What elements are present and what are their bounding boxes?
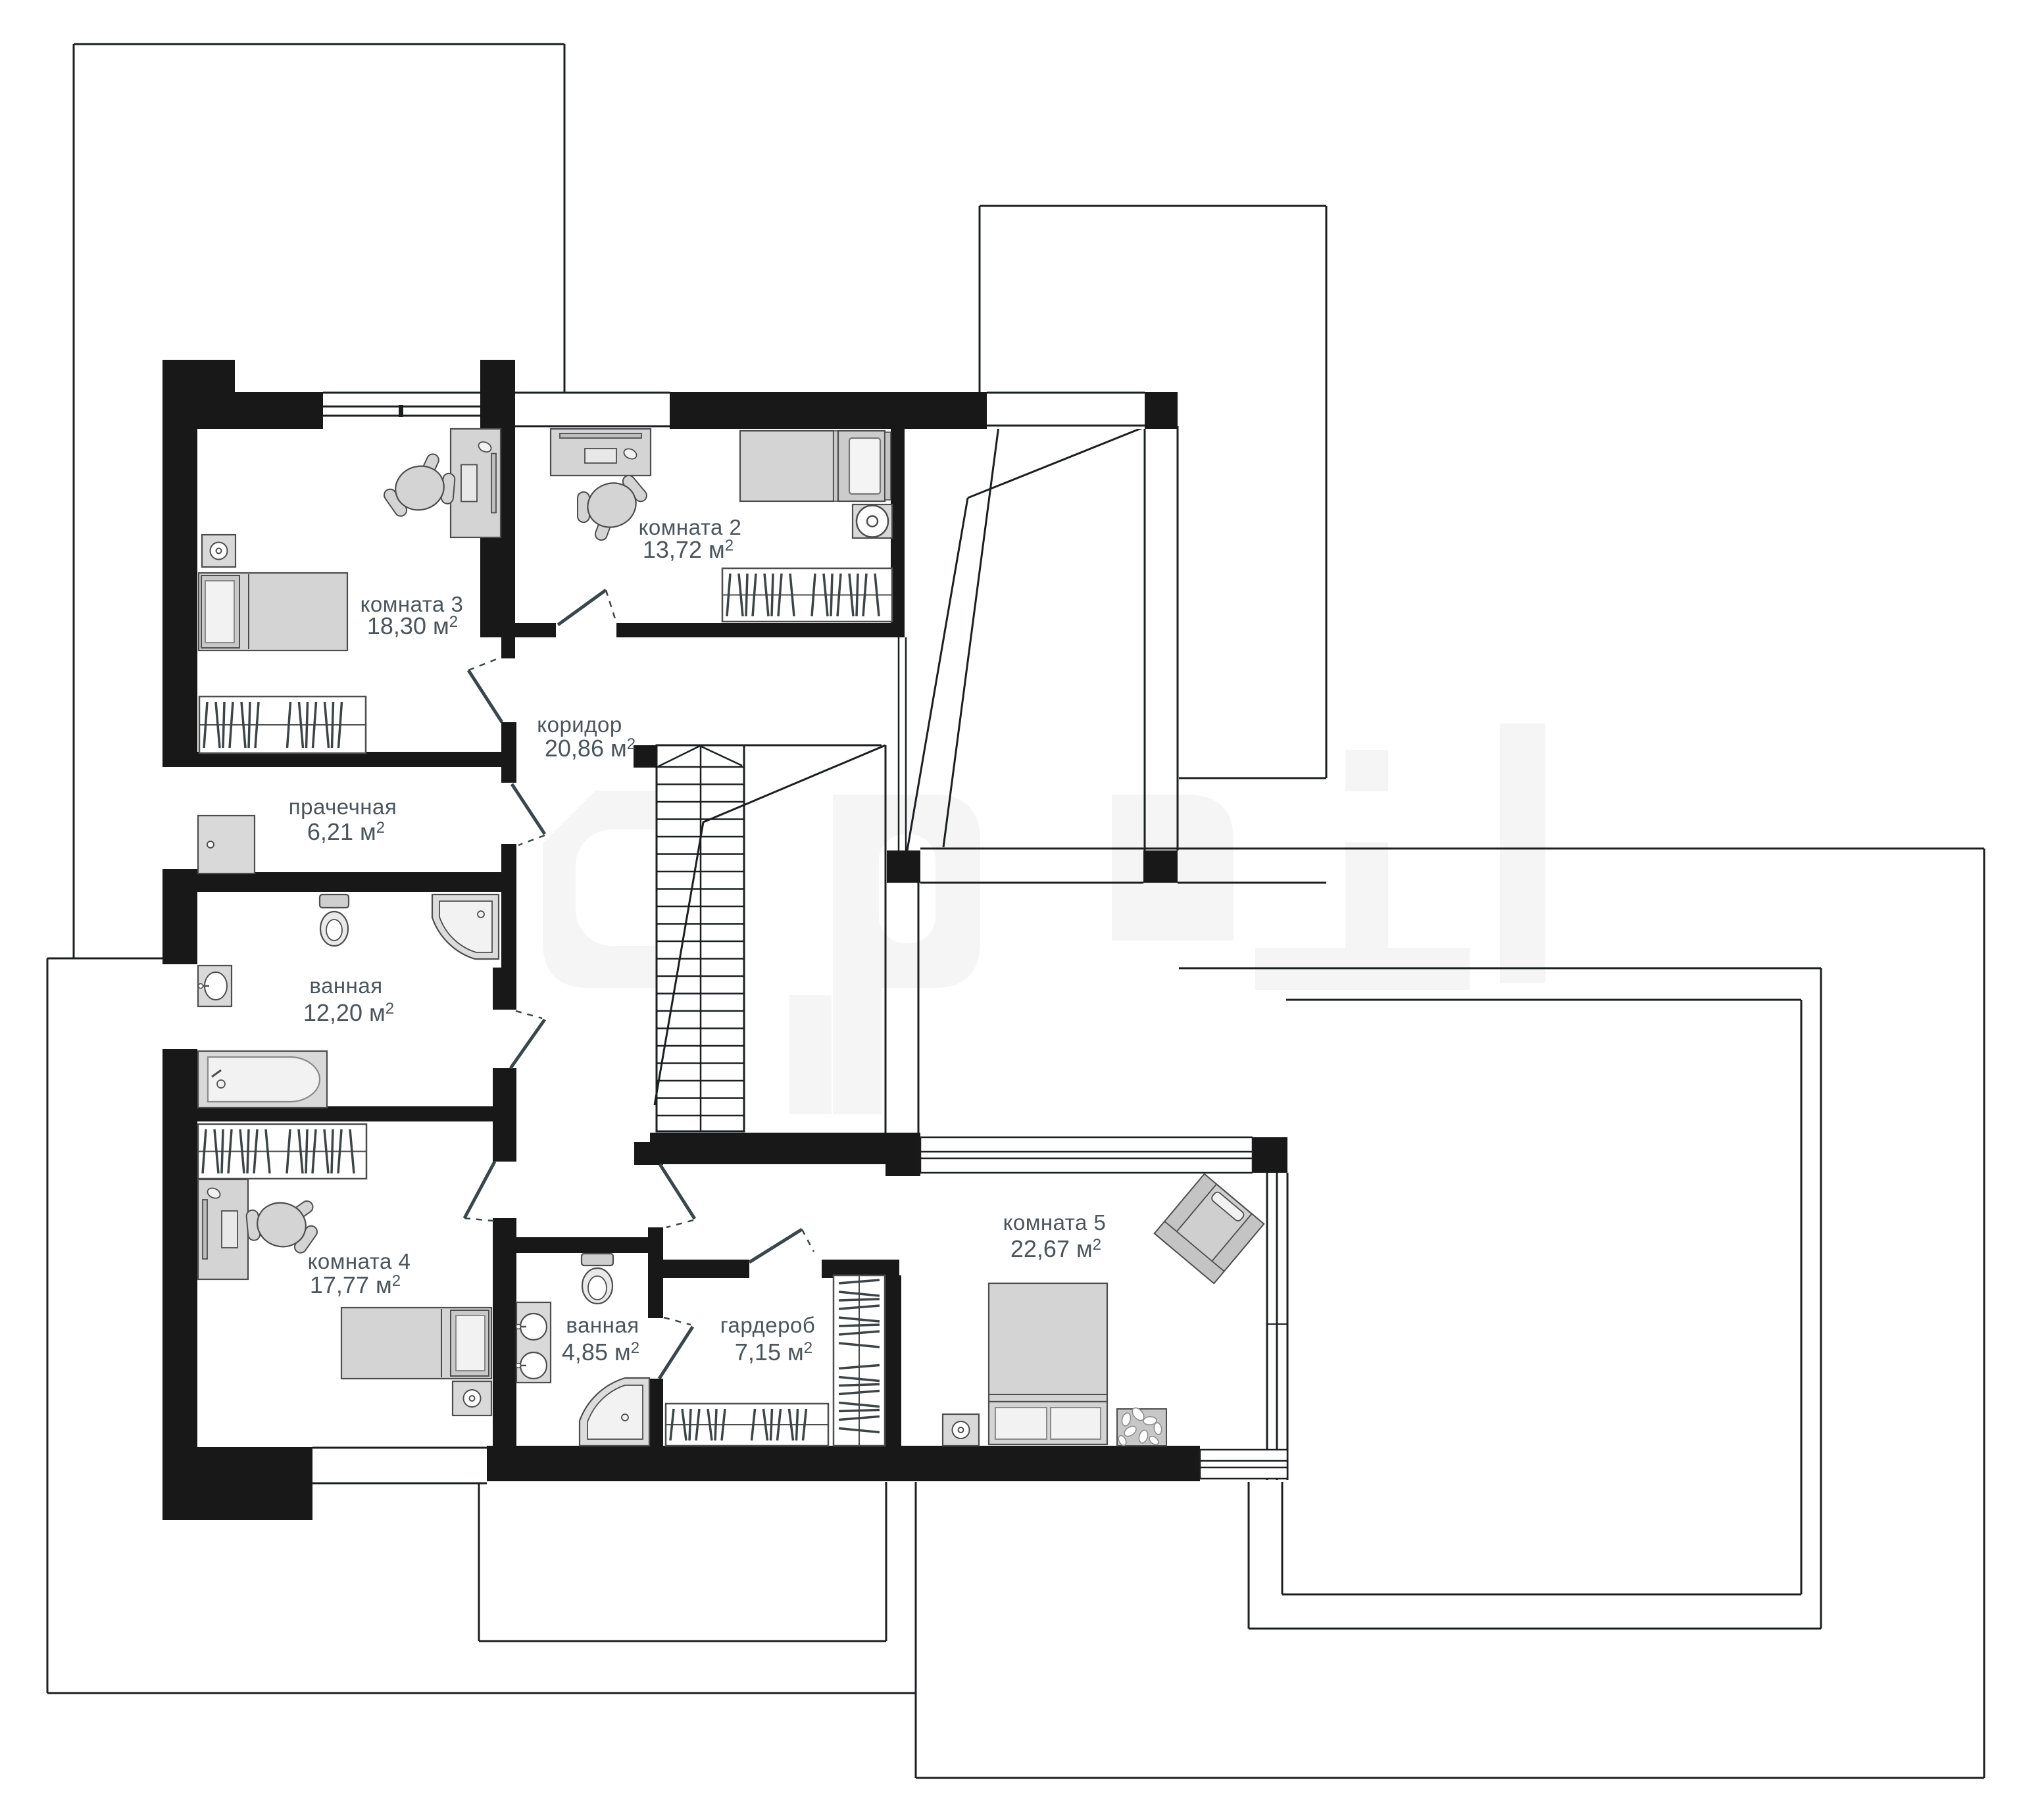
svg-text:20,86 м2: 20,86 м2 [545,735,636,762]
svg-text:22,67 м2: 22,67 м2 [1010,1235,1101,1262]
svg-text:13,72 м2: 13,72 м2 [643,536,734,563]
svg-text:17,77 м2: 17,77 м2 [310,1271,401,1298]
svg-text:18,30 м2: 18,30 м2 [367,612,458,639]
svg-text:4,85 м2: 4,85 м2 [562,1339,639,1365]
svg-text:комната 4: комната 4 [308,1249,411,1273]
svg-text:комната 5: комната 5 [1003,1210,1107,1235]
svg-text:гардероб: гардероб [720,1313,815,1337]
svg-text:ванная: ванная [309,973,382,998]
svg-text:6,21 м2: 6,21 м2 [307,818,385,845]
svg-text:коридор: коридор [537,712,622,737]
svg-text:ванная: ванная [566,1313,639,1337]
svg-text:7,15 м2: 7,15 м2 [735,1339,812,1365]
svg-text:прачечная: прачечная [289,795,397,819]
svg-text:12,20 м2: 12,20 м2 [303,999,394,1026]
